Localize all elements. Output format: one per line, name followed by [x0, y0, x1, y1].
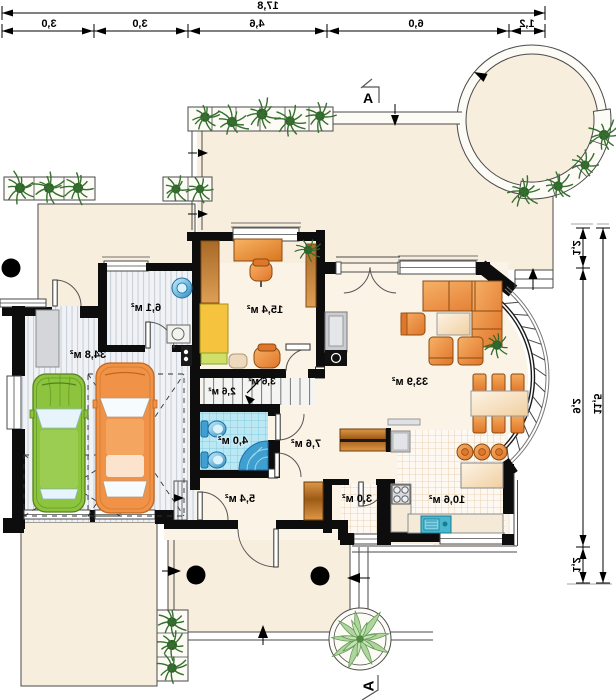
svg-text:1,2: 1,2 — [570, 557, 582, 572]
svg-text:10,6 м²: 10,6 м² — [429, 494, 466, 506]
svg-text:A: A — [361, 681, 378, 692]
svg-text:3,0 м²: 3,0 м² — [342, 493, 372, 505]
svg-text:33,9 м²: 33,9 м² — [392, 376, 429, 388]
svg-text:4,0 м²: 4,0 м² — [218, 435, 248, 447]
svg-text:3,0: 3,0 — [41, 18, 56, 30]
svg-text:4,6: 4,6 — [249, 18, 264, 30]
svg-text:1,2: 1,2 — [519, 18, 534, 30]
svg-text:6,0: 6,0 — [408, 18, 423, 30]
svg-text:6,1 м²: 6,1 м² — [131, 302, 161, 314]
svg-text:34,8 м²: 34,8 м² — [70, 349, 107, 361]
svg-text:3,0: 3,0 — [132, 18, 147, 30]
svg-text:15,4 м²: 15,4 м² — [247, 304, 284, 316]
svg-text:1,2: 1,2 — [570, 240, 582, 255]
svg-text:5,4 м²: 5,4 м² — [225, 493, 255, 505]
svg-text:A: A — [363, 90, 373, 106]
svg-text:11,5: 11,5 — [591, 394, 603, 415]
svg-text:3,6 м²: 3,6 м² — [248, 377, 276, 388]
svg-text:7,6 м²: 7,6 м² — [291, 438, 321, 450]
svg-text:17,8: 17,8 — [257, 0, 278, 12]
svg-text:9,2: 9,2 — [570, 398, 582, 413]
svg-text:2,6 м²: 2,6 м² — [208, 387, 236, 398]
